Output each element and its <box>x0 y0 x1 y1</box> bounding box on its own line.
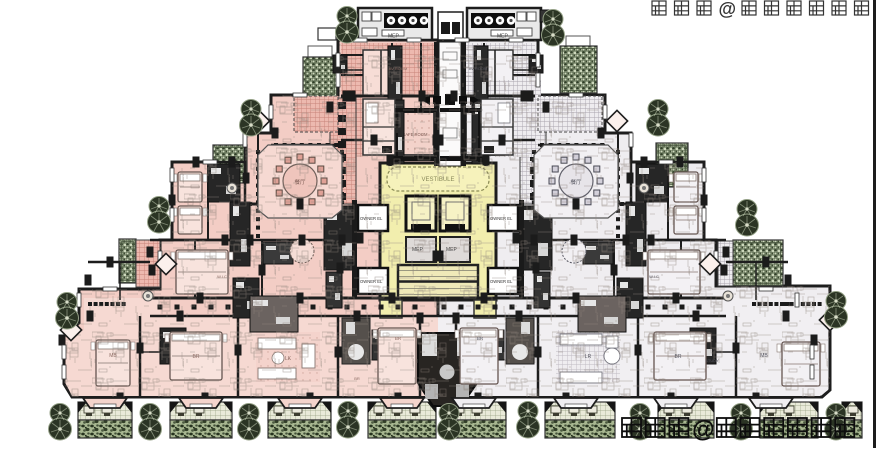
svg-text:LR: LR <box>585 354 592 360</box>
svg-text:BR: BR <box>395 336 402 341</box>
svg-text:@: @ <box>719 0 737 19</box>
svg-text:BR: BR <box>477 336 484 341</box>
svg-text:AV ROOM: AV ROOM <box>469 66 488 71</box>
svg-text:STUDY: STUDY <box>705 358 719 363</box>
svg-text:MB: MB <box>760 353 768 359</box>
svg-text:LK: LK <box>285 356 292 362</box>
svg-text:BR: BR <box>675 354 682 360</box>
svg-text:MEP: MEP <box>388 34 400 40</box>
svg-text:W.I.C: W.I.C <box>217 274 227 279</box>
svg-text:@: @ <box>692 416 714 442</box>
svg-text:BR: BR <box>193 354 200 360</box>
svg-text:W.I.C: W.I.C <box>649 274 659 279</box>
svg-text:MEP: MEP <box>497 34 509 40</box>
svg-text:BR: BR <box>354 376 360 381</box>
svg-text:AV ROOM: AV ROOM <box>389 66 408 71</box>
svg-text:MB: MB <box>109 353 117 359</box>
